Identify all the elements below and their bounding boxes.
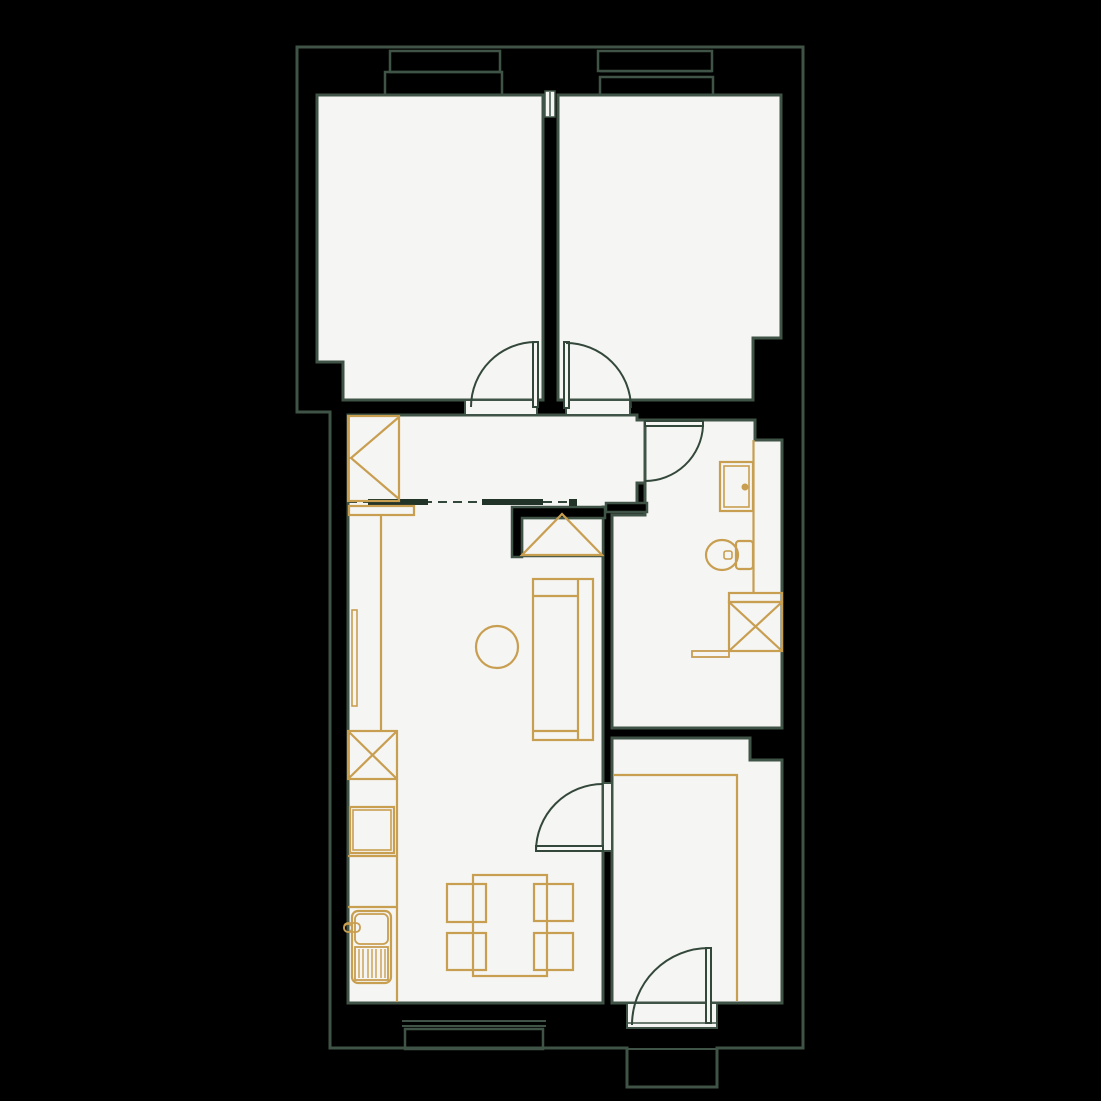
bathroom-door-leaf [645,421,703,426]
bottom-room-floor [612,738,782,1003]
ceiling-beam-end [569,499,577,506]
threshold-bottom-room-door [603,783,612,851]
threshold-bedroom-right-door [566,400,630,415]
washbasin-drain-dot [742,484,749,491]
closet-niche-floor [522,518,603,556]
kitchen-sink-drainer-ridges [359,949,385,978]
threshold-entry-door [627,1003,717,1028]
hall-bathroom-wall [606,503,647,512]
bedroom-left-door-leaf [533,342,538,407]
bedroom-right-door-leaf [564,342,569,408]
entry-door-leaf [706,948,711,1023]
threshold-bedroom-left-door [465,400,537,415]
bedroom-left-floor [317,95,543,400]
floor-plan-page [0,0,1101,1101]
ceiling-beam-b [482,499,543,505]
bedroom-right-floor [558,95,781,400]
bottom-room-door-leaf [536,846,603,851]
apartment-floor-plan [0,0,1101,1101]
